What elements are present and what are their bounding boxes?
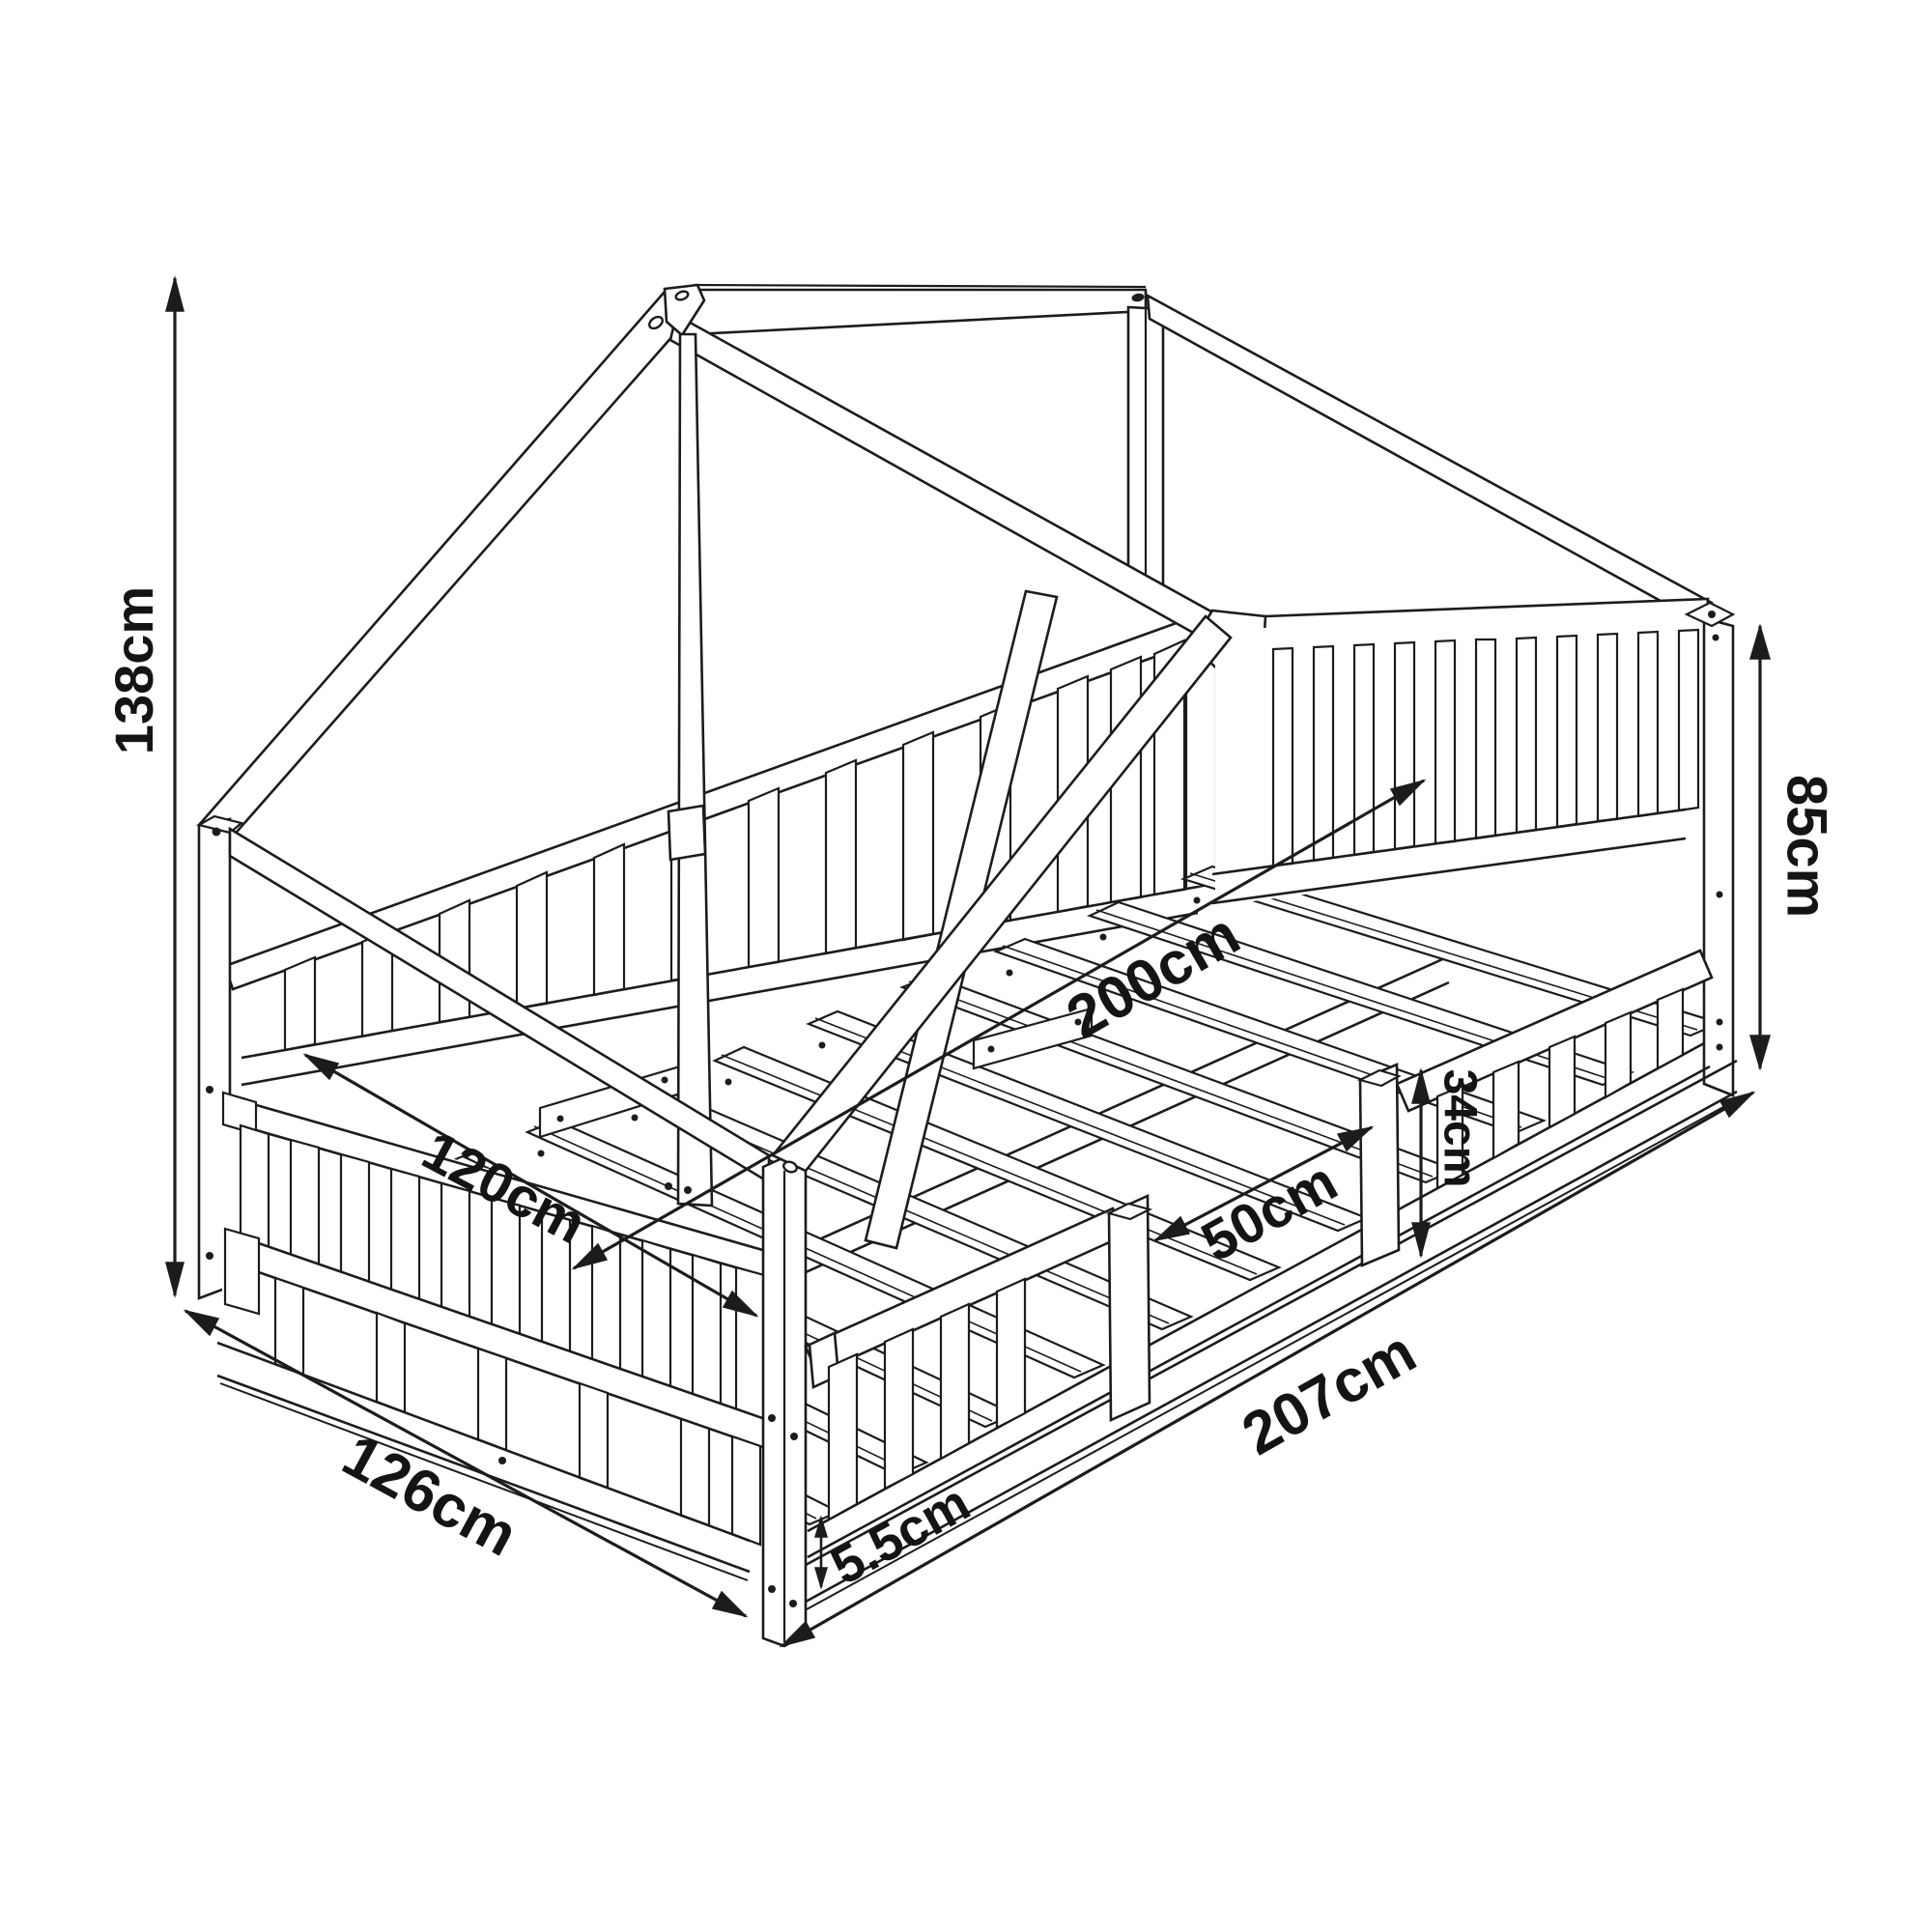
svg-text:138cm: 138cm bbox=[103, 586, 164, 754]
svg-text:34cm: 34cm bbox=[1434, 1069, 1485, 1188]
svg-text:85cm: 85cm bbox=[1776, 775, 1838, 918]
